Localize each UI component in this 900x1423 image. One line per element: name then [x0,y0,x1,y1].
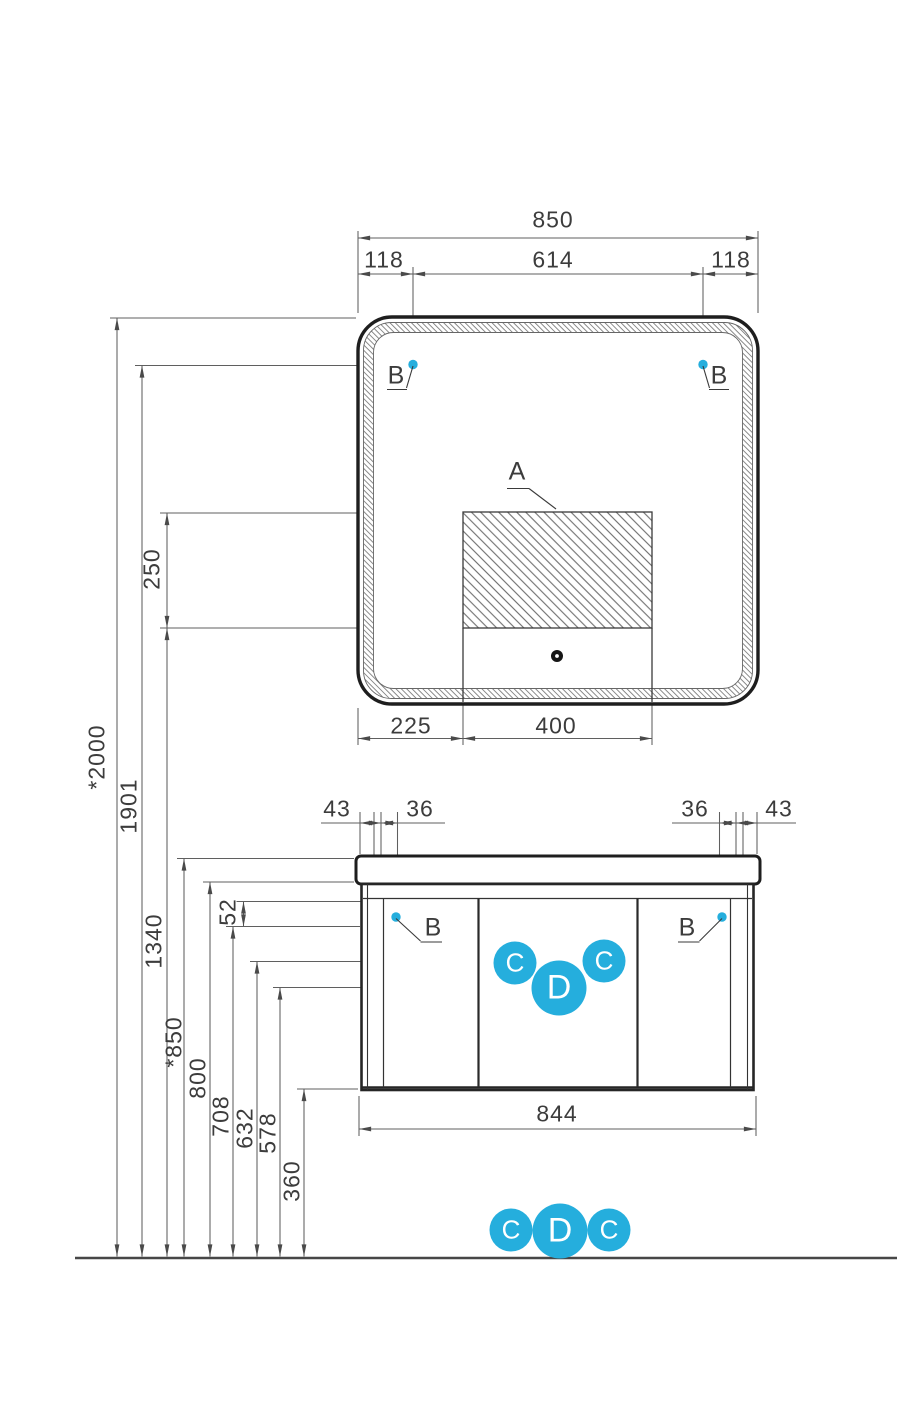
badge-c-floor-right: C [588,1209,631,1252]
badge-c-floor-left: C [490,1209,533,1252]
dim-hinge-lower-height: 578 [257,1112,280,1153]
dim-cabinet-edge-left: 43 [323,798,351,821]
badge-d-floor: D [533,1204,588,1259]
dim-panel-bottom-height: 1340 [143,913,166,968]
hinge-point-right-dot [717,912,726,921]
badge-c-cabinet-right: C [583,940,626,983]
callout-b-mirror-left: B [388,364,405,389]
badge-c-cabinet-left: C [494,942,537,985]
mirror-outline [358,317,758,704]
dim-cabinet-inset-left: 36 [406,798,434,821]
dim-panel-height: 250 [141,548,164,589]
dim-mirror-width: 850 [532,209,573,232]
dim-total-height: *2000 [86,724,109,789]
dim-mirror-bottom-center: 400 [535,715,576,738]
drawing-canvas [0,0,900,1423]
dim-cabinet-width: 844 [536,1103,577,1126]
dim-mirror-bottom-left: 225 [390,715,431,738]
dim-mirror-offset-left: 118 [364,249,404,272]
callout-b-mirror-right: B [711,364,728,389]
dim-cabinet-bottom-height: 360 [281,1160,304,1201]
callout-b-cabinet-left: B [425,916,442,941]
dim-countertop-height: *850 [163,1016,186,1067]
dim-hinge-upper-height: 632 [234,1107,257,1148]
dim-mirror-center-span: 614 [532,249,573,272]
dim-mirror-offset-right: 118 [711,249,751,272]
light-panel-area [463,512,652,628]
dim-cabinet-inset-right: 36 [681,798,709,821]
installation-drawing: 850 118 614 118 225 400 43 36 36 43 844 … [0,0,900,1423]
callout-b-cabinet-right: B [679,916,696,941]
dim-cabinet-edge-right: 43 [765,798,793,821]
dim-door-top-height: 708 [210,1095,233,1136]
dim-countertop-bottom-height: 800 [187,1057,210,1098]
countertop [356,856,760,884]
badge-d-cabinet: D [532,961,587,1016]
dim-apron-height: 52 [217,898,240,926]
hinge-point-left-dot [391,912,400,921]
callout-a-label: A [509,460,526,485]
dim-mirror-mount-height: 1901 [118,778,141,833]
